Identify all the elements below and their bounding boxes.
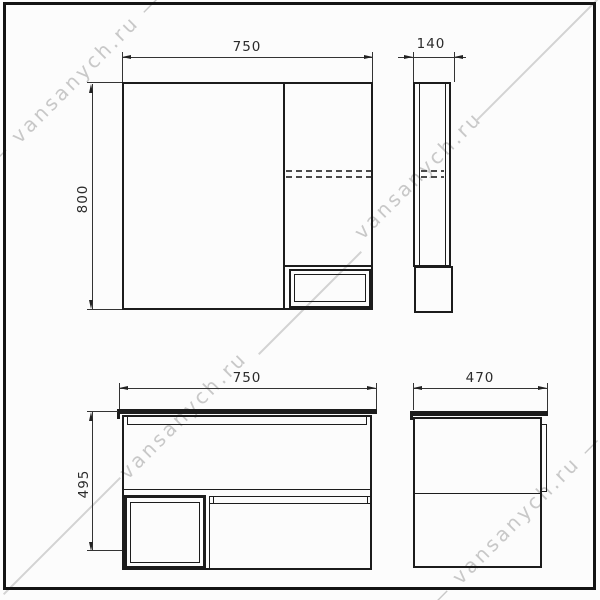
extension-line (413, 383, 414, 410)
countertop-side (410, 411, 548, 416)
dimension-line (413, 388, 547, 389)
dimension-label-depth: 470 (466, 370, 495, 386)
technical-drawing: — vansanych.ru — vansanych.ru vansanych.… (0, 0, 600, 600)
drawer-division-line (413, 493, 542, 495)
wall-mount-rail (541, 424, 547, 492)
extension-line (547, 383, 548, 411)
dimension-arrow (413, 386, 422, 390)
vanity-side-view: 470 (0, 0, 600, 600)
